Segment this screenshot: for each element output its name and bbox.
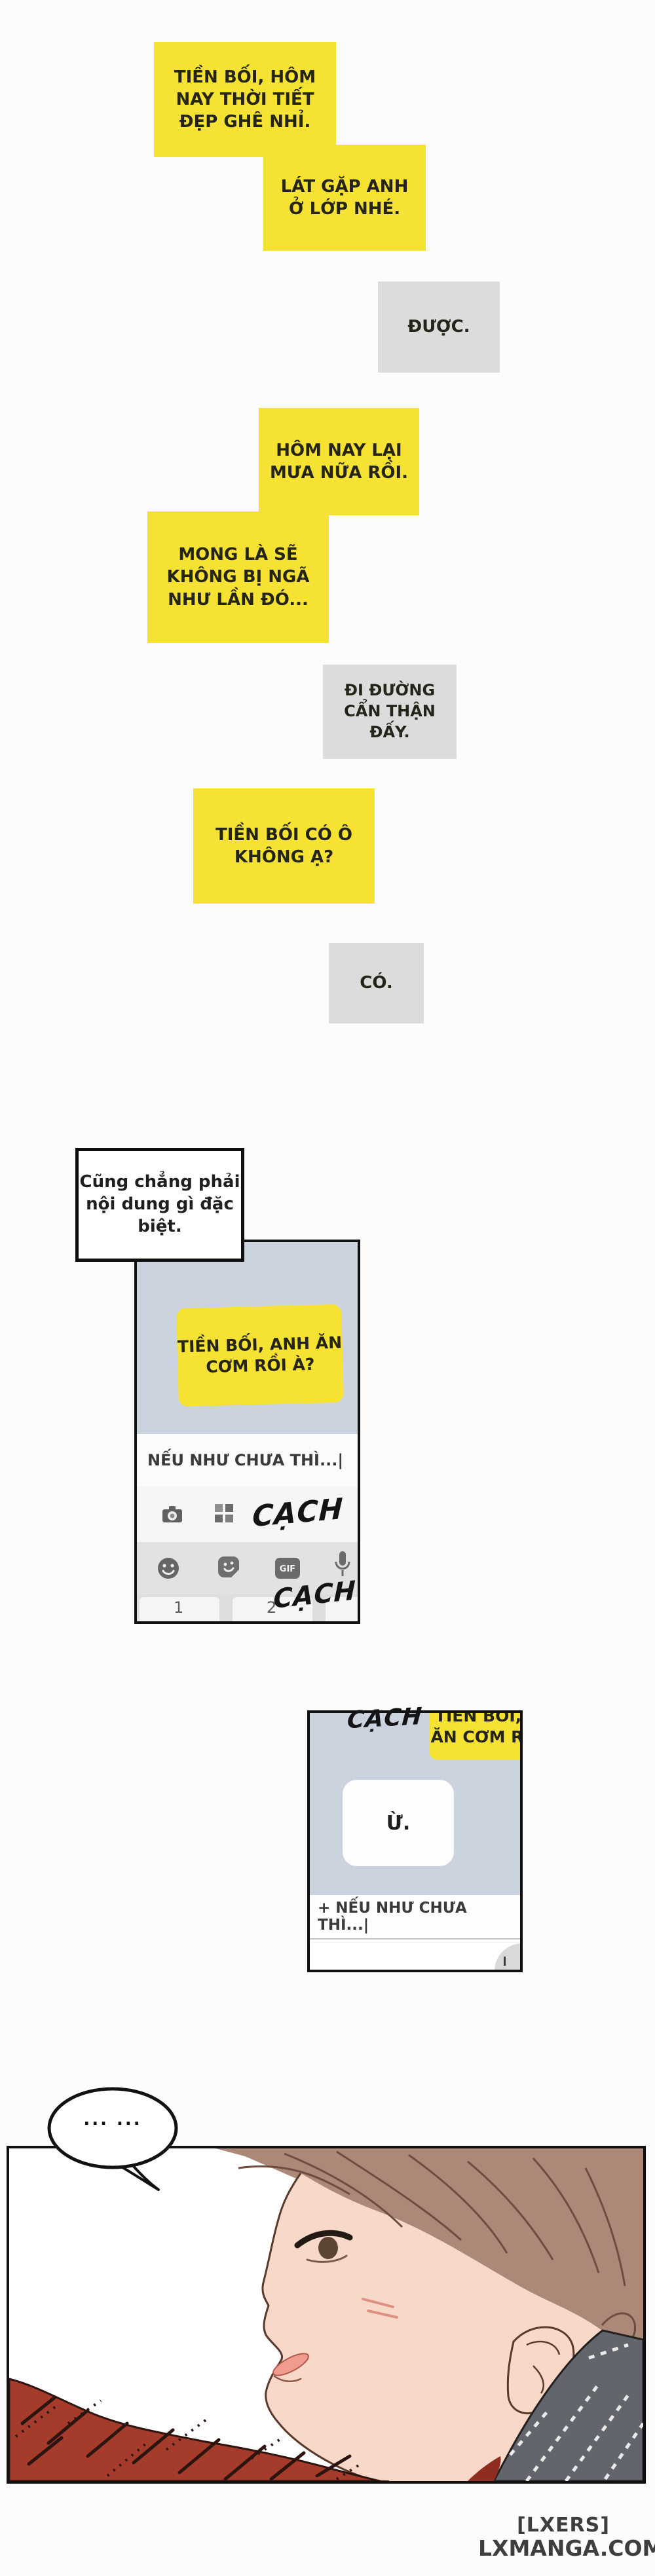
camera-icon	[162, 1505, 183, 1526]
phone-message-bubble: TIỀN BỐI, ANH ĂN CƠM RỒI À?	[176, 1304, 344, 1407]
gif-icon: GIF	[274, 1557, 301, 1582]
key-1-label: 1	[174, 1598, 183, 1617]
message-input-field: NẾU NHƯ CHƯA THÌ...|	[137, 1434, 358, 1486]
phone-reply-bubble: Ừ.	[343, 1780, 454, 1866]
watermark: [LXERS] LXMANGA.COM	[478, 2514, 648, 2561]
emoji-icon	[157, 1556, 180, 1583]
watermark-site: LXMANGA.COM	[478, 2537, 648, 2561]
message-input-field: + NẾU NHƯ CHƯA THÌ...|	[310, 1895, 520, 1938]
illustration-panel	[7, 2146, 646, 2484]
chat-bubble-sent: HÔM NAY LẠI MƯA NỮA RỒI.	[259, 408, 419, 515]
chat-bubble-received: ĐI ĐƯỜNG CẨN THẬN ĐẤY.	[323, 665, 457, 759]
message-input-text: NẾU NHƯ CHƯA THÌ...|	[147, 1451, 343, 1469]
character-illustration	[9, 2148, 643, 2481]
send-button-mark	[504, 1957, 506, 1966]
watermark-group: [LXERS]	[478, 2514, 648, 2537]
message-input-text: + NẾU NHƯ CHƯA THÌ...|	[318, 1900, 520, 1934]
chat-bubble-received: CÓ.	[329, 943, 424, 1023]
chat-bubble-sent: LÁT GẶP ANH Ở LỚP NHÉ.	[263, 145, 426, 251]
phone-message-bubble-clipped: TIỀN BỐI, ANH ĂN CƠM RỒI À?	[429, 1710, 523, 1760]
phone-screenshot-panel-1: TIỀN BỐI, ANH ĂN CƠM RỒI À? NẾU NHƯ CHƯA…	[134, 1240, 360, 1624]
chat-bubble-received: ĐƯỢC.	[378, 282, 500, 373]
sticker-icon	[217, 1555, 240, 1581]
clipped-line-2: ĂN CƠM RỒI À?	[430, 1727, 523, 1748]
chat-bubble-sent: TIỀN BỐI CÓ Ô KHÔNG Ạ?	[193, 788, 375, 904]
chat-bubble-sent: MONG LÀ SẼ KHÔNG BỊ NGÃ NHƯ LẦN ĐÓ...	[147, 511, 329, 643]
sfx-cach-panel2: CẠCH	[346, 1703, 424, 1734]
clipped-line-1: TIỀN BỐI, ANH	[435, 1710, 523, 1727]
svg-text:GIF: GIF	[280, 1564, 295, 1574]
narration-box: Cũng chẳng phải nội dung gì đặc biệt.	[75, 1148, 244, 1262]
silence-speech-balloon: ... ...	[46, 2086, 183, 2196]
grid-icon	[214, 1503, 234, 1526]
chat-bubble-sent: TIỀN BỐI, HÔM NAY THỜI TIẾT ĐẸP GHÊ NHỈ.	[154, 42, 336, 157]
silence-text: ... ...	[46, 2110, 179, 2129]
phone-screenshot-panel-2: TIỀN BỐI, ANH ĂN CƠM RỒI À? Ừ. + NẾU NHƯ…	[307, 1710, 523, 1972]
manga-page: TIỀN BỐI, HÔM NAY THỜI TIẾT ĐẸP GHÊ NHỈ.…	[0, 0, 655, 2576]
phone-bottom-strip	[310, 1940, 520, 1970]
